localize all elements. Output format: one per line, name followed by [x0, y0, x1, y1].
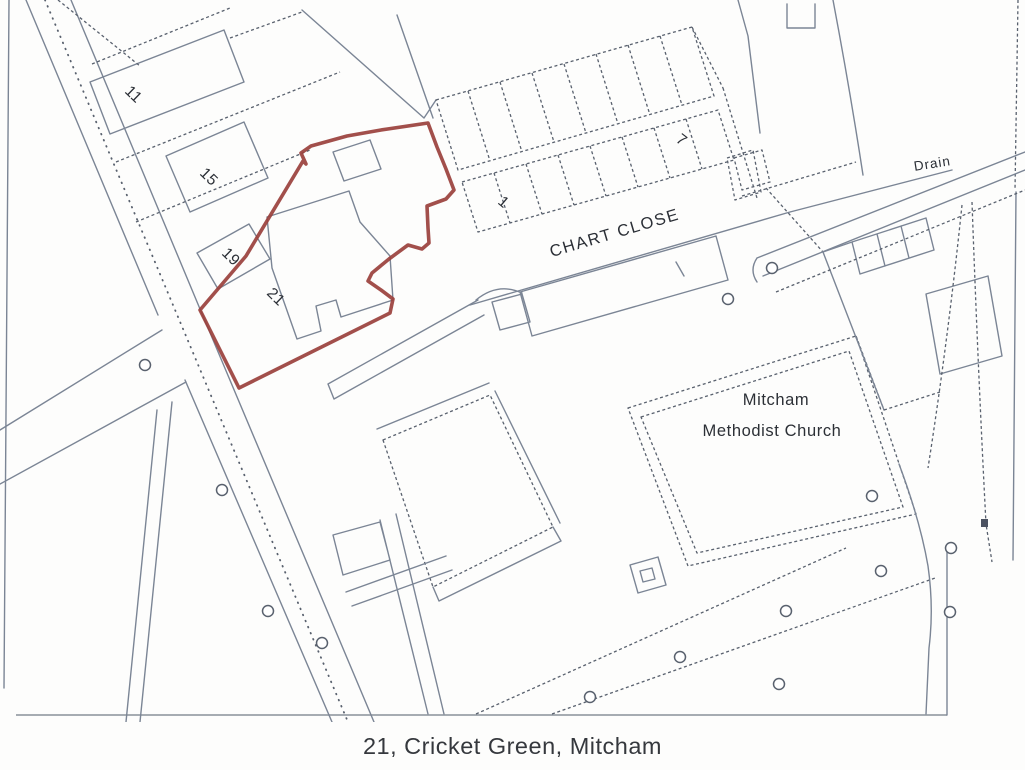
house-number-label: 7	[673, 131, 691, 150]
hall-border-strips	[377, 383, 561, 601]
map-sheet: 11 15 19 21 1 7 CHART CLOSE Drain Mitcha…	[0, 0, 1025, 770]
church-outline-inner	[641, 351, 903, 553]
map-border-top-right	[1015, 0, 1018, 190]
building-21	[267, 191, 393, 339]
map-frame	[4, 0, 1018, 715]
house-number-label: 21	[263, 285, 288, 310]
east-boundaries	[742, 162, 992, 562]
terrace-row-upper	[436, 27, 714, 170]
survey-circles	[140, 263, 957, 703]
street-label: CHART CLOSE	[548, 205, 682, 260]
drain-label: Drain	[913, 153, 952, 174]
church-outline-outer	[628, 336, 916, 566]
building-21-annex	[333, 140, 381, 181]
boundary-marker	[981, 519, 988, 527]
road-centerline	[45, 0, 348, 722]
church-annex	[476, 236, 728, 336]
parcel-boundaries-top	[302, 10, 436, 118]
chart-close-terraces	[436, 27, 770, 232]
drain-boundaries	[692, 27, 1025, 292]
drain-channel	[692, 0, 1025, 292]
terrace-row-lower	[462, 110, 734, 232]
church-label-line2: Methodist Church	[703, 422, 842, 440]
drain-lines	[738, 0, 1025, 282]
house-number-label: 11	[121, 83, 145, 107]
church-label-line1: Mitcham	[743, 391, 810, 409]
buildings-northwest	[90, 30, 393, 339]
terrace-end-plot	[734, 150, 770, 190]
house-number-label: 1	[494, 193, 512, 212]
building-15	[166, 122, 268, 212]
map-linework: 11 15 19 21 1 7 CHART CLOSE Drain Mitcha…	[0, 0, 1025, 722]
house-number-label: 15	[196, 165, 221, 190]
parcel-boundaries-northwest	[58, 0, 340, 222]
map-caption: 21, Cricket Green, Mitcham	[0, 722, 1025, 770]
building-11	[90, 30, 244, 134]
map-canvas: 11 15 19 21 1 7 CHART CLOSE Drain Mitcha…	[0, 0, 1025, 722]
